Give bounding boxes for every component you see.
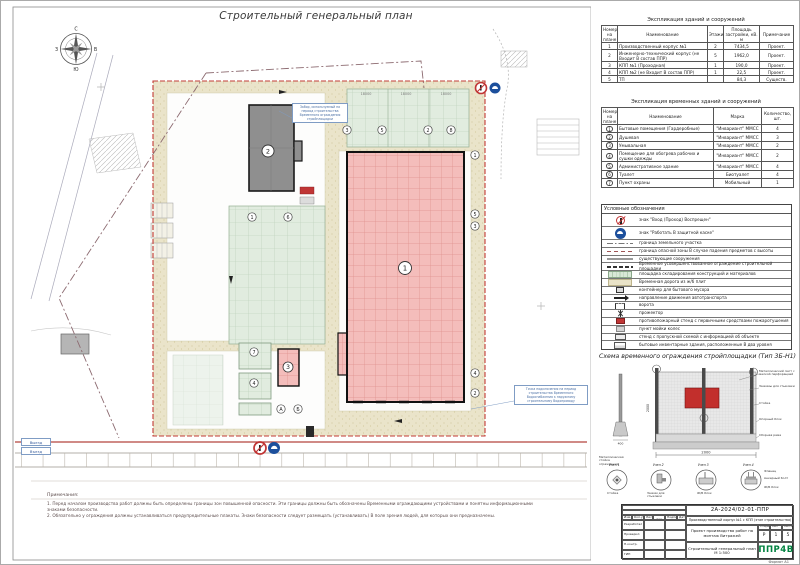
svg-text:4: 4: [473, 371, 476, 377]
fence-node1-sub: Стойка: [607, 492, 631, 495]
ppr-subject: Проект производства работ на монтаж Витр…: [686, 525, 758, 542]
dim-label: 18000: [361, 92, 372, 96]
svg-text:2: 2: [266, 147, 270, 155]
svg-text:4: 4: [252, 381, 255, 387]
fence-node2-label: Узел 2: [653, 463, 664, 467]
fence-node4-label: Узел 4: [743, 463, 754, 467]
legend-item: Временное усовершенствованное ограждение…: [602, 263, 791, 271]
compass-east-label: В: [94, 47, 97, 53]
fence-node2-sub: Зажим для стыковки: [647, 492, 677, 499]
water-connection-callout: Точка подключения на период строительств…: [514, 385, 588, 405]
building-3-bubble: 3: [283, 362, 293, 372]
existing-structures-line-icon: [607, 258, 633, 260]
gate-labels: Выезд Въезд: [21, 438, 51, 456]
entry-label: Въезд: [21, 447, 51, 455]
notes-title: Примечания:: [47, 493, 552, 498]
fence-node4-sub2: Анкерный болт: [764, 477, 794, 480]
dim-label: 18000: [401, 92, 412, 96]
object-name: Производственный корпус №1 с КПП (этап с…: [686, 516, 794, 525]
svg-text:1: 1: [473, 153, 476, 159]
sheet-value: 1: [770, 530, 782, 542]
table-row: 3КПП №1 (Проходная)1190,0Проект.: [602, 62, 794, 69]
storage-area-top: [347, 89, 469, 147]
svg-text:7: 7: [252, 350, 255, 356]
legend-item: противопожарный стенд с первичными средс…: [602, 318, 791, 326]
building-2-bubble: 2: [262, 145, 274, 157]
helmet-sign-icon-top: [490, 83, 501, 94]
fence-drawing: 2000 2000 400: [599, 360, 796, 502]
building-1-production: [338, 152, 464, 402]
fence-height-dim: 2000: [646, 404, 650, 412]
legend-item: ворота: [602, 302, 791, 310]
note-item: 2. Обязательно у ограждения должны устан…: [47, 513, 552, 519]
buildings-table-title: Экспликация зданий и сооружений: [599, 17, 793, 23]
table-header-row: Номер на плане Наименование Марка Количе…: [602, 108, 794, 125]
dim-label: 18000: [441, 92, 452, 96]
fence-scheme: Схема временного ограждения стройплощадк…: [599, 353, 796, 502]
sig-row-label: Н.контр.: [622, 540, 644, 550]
compass-rose: С В Ю З: [55, 27, 97, 74]
fence-node3-sub: Ж/Б блок: [697, 492, 721, 495]
fence-base-dim: 400: [618, 442, 624, 446]
compass-south-label: Ю: [73, 67, 78, 73]
legend-item: направление движения автотранспорта: [602, 295, 791, 303]
stage-value: Р: [758, 530, 770, 542]
fence-callout: Забор, используемый на период строительс…: [292, 103, 348, 123]
waste-container-icon: [306, 426, 314, 437]
fence-node-details: [607, 470, 761, 490]
fence-node4-sub3: Ж/Б блок: [764, 486, 794, 489]
compass-west-label: З: [55, 47, 58, 53]
info-stand-icon: [300, 197, 314, 204]
sig-row-label: Проверил: [622, 530, 644, 540]
legend: Условные обозначения знак "Вход (Проход)…: [601, 204, 792, 350]
svg-text:3: 3: [286, 364, 290, 371]
table-row: 2Инженерно-технический корпус (не Входит…: [602, 50, 794, 62]
parcel-boundary-line-icon: [607, 243, 633, 244]
table-row: 5Административное здание"Инвариант" ММСС…: [602, 162, 794, 170]
fence-scheme-title: Схема временного ограждения стройплощадк…: [599, 353, 796, 360]
drawing-name: Строительный генеральный план М 1:500: [686, 542, 758, 560]
site-plan: 18000 18000 18000 1 2 3 3 5 2 8 1 6 1 5 …: [1, 1, 591, 565]
legend-item: площадка складирования конструкций и мат…: [602, 271, 791, 279]
temp-road-swatch-icon: [608, 279, 632, 286]
format-label: Формат А1: [701, 560, 789, 564]
two-level-cabins-icon: [614, 342, 626, 349]
svg-text:Б: Б: [296, 407, 299, 413]
svg-text:6: 6: [286, 215, 289, 221]
buildings-table: Номер на плане Наименование Этажи Площад…: [601, 25, 794, 83]
traffic-arrow-icon: [614, 297, 626, 299]
temp-table-title: Экспликация временных зданий и сооружени…: [599, 99, 793, 105]
table-row: 6ТуалетБиотуалет4: [602, 170, 794, 178]
note-item: 1. Перед началом производства работ долж…: [47, 501, 552, 513]
svg-text:5: 5: [380, 128, 383, 134]
svg-text:8: 8: [449, 128, 452, 134]
sheets-value: 5: [782, 530, 794, 542]
legend-item: бытовые инвентарные здания, расположенны…: [602, 341, 791, 349]
legend-item: граница земельного участка: [602, 240, 791, 248]
gate-icon: [615, 303, 625, 309]
compass-north-label: С: [74, 27, 78, 33]
table-row: 1Производственный корпус №127434,5Проект…: [602, 43, 794, 50]
legend-item: знак "Работать В защитной каске": [602, 227, 791, 240]
storage-area-left: [229, 206, 325, 344]
legend-item: граница опасной зоны В случае падения пр…: [602, 248, 791, 256]
table-row: 5ТП84,3Существ.: [602, 76, 794, 83]
table-row: 3Умывальная"Инвариант" ММСС2: [602, 141, 794, 149]
temp-buildings-table: Номер на плане Наименование Марка Количе…: [601, 107, 794, 188]
waste-container-icon: [616, 287, 624, 293]
table-row: 2Душевая"Инвариант" ММСС3: [602, 133, 794, 141]
context-stairs: [537, 119, 579, 155]
legend-title: Условные обозначения: [602, 205, 791, 214]
svg-text:5: 5: [473, 212, 476, 218]
sig-row-label: Разработал: [622, 520, 644, 530]
svg-text:2: 2: [426, 128, 429, 134]
legend-item: прожектор: [602, 310, 791, 318]
svg-text:2: 2: [473, 391, 476, 397]
fence-post-label: Стойка: [759, 402, 795, 405]
legend-item: стенд с пропускной схемой с информацией …: [602, 334, 791, 342]
svg-text:3: 3: [345, 128, 348, 134]
fence-block-label: Опорный блок: [759, 418, 795, 421]
fence-width-dim: 2000: [701, 451, 711, 455]
sig-row-label: ГИП: [622, 550, 644, 560]
legend-item: контейнер для бытового мусора: [602, 287, 791, 295]
fence-node1-label: Узел 1: [609, 463, 620, 467]
existing-road: [15, 442, 587, 499]
table-row: 1Бытовые помещения (Гардеробные)"Инвариа…: [602, 125, 794, 133]
legend-item: пункт мойки колес: [602, 326, 791, 334]
table-row: 4КПП №2 (не Входит В состав ППР)122,5Про…: [602, 69, 794, 76]
fire-stand-icon: [300, 187, 314, 194]
drawing-sheet: 18000 18000 18000 1 2 3 3 5 2 8 1 6 1 5 …: [0, 0, 800, 565]
exit-label: Выезд: [21, 438, 51, 446]
svg-text:1: 1: [403, 265, 407, 273]
document-number: 2А-2024/02-01-ППР: [686, 505, 794, 516]
legend-item: Временная дорога из ж/б плит: [602, 279, 791, 287]
fence-clamps-label: Зажимы для стыковки: [759, 385, 795, 388]
table-header-row: Номер на плане Наименование Этажи Площад…: [602, 26, 794, 43]
floodlight-icon: [616, 310, 625, 317]
helmet-sign-icon-bottom: [268, 442, 280, 454]
building-1-bubble: 1: [399, 262, 412, 275]
no-pedestrian-sign-icon: [616, 216, 625, 225]
fence-node4-sub1: Фланец: [764, 470, 794, 473]
fence-frame-label: Сборная рама: [759, 434, 795, 437]
svg-text:1: 1: [250, 215, 253, 221]
parking-rects: [151, 203, 173, 258]
no-pedestrian-sign-icon-bottom: [254, 442, 266, 454]
fire-stand-icon: [616, 318, 625, 324]
plan-title: Строительный генеральный план: [176, 10, 456, 22]
notes-block: Примечания: 1. Перед началом производств…: [47, 493, 552, 519]
temp-fence-line-icon: [607, 266, 633, 268]
fence-node3-label: Узел 3: [698, 463, 709, 467]
storage-area-swatch-icon: [608, 271, 632, 278]
existing-building: [61, 334, 89, 354]
fence-sheet-label: Металлический лист с мелкой перфорацией: [759, 370, 795, 377]
danger-zone-line-icon: [607, 251, 633, 252]
info-stand-icon: [615, 334, 626, 340]
table-row: 7Пункт охраныМобильный1: [602, 179, 794, 187]
wheel-wash-icon: [616, 326, 625, 332]
legend-item: знак "Вход (Проход) Воспрещен": [602, 214, 791, 227]
context-hatch-area: [89, 133, 141, 173]
company-logo: ППР4В: [758, 542, 794, 560]
svg-text:3: 3: [473, 224, 476, 230]
helmet-sign-icon: [615, 228, 626, 239]
title-block: Изм. Кол.уч. Лист № док. Подпись Дата Ра…: [621, 504, 793, 559]
table-row: 4Помещение для обогрева рабочих и сушки …: [602, 150, 794, 162]
no-pedestrian-sign-icon-top: [476, 83, 487, 94]
